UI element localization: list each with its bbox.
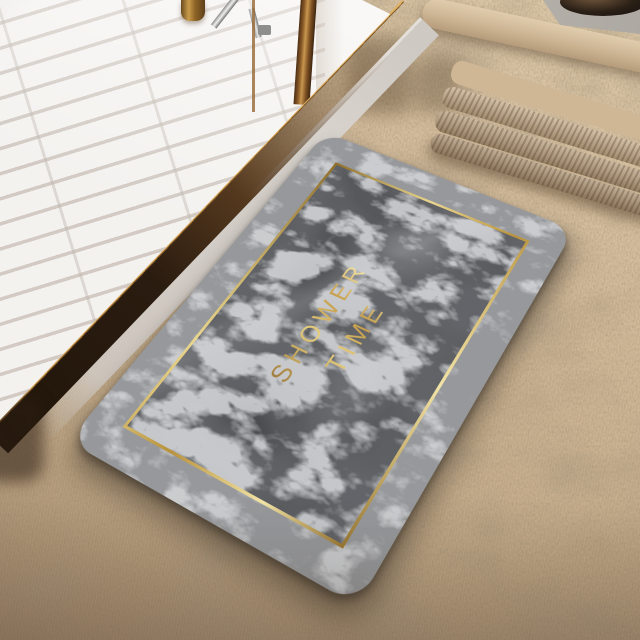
mat-text-block: SHOWER TIME bbox=[259, 256, 414, 408]
chrome-fixture bbox=[258, 25, 271, 35]
door-frame-line bbox=[252, 0, 255, 112]
brass-bottle bbox=[181, 0, 205, 21]
bathroom-scene: SHOWER TIME bbox=[0, 0, 640, 640]
